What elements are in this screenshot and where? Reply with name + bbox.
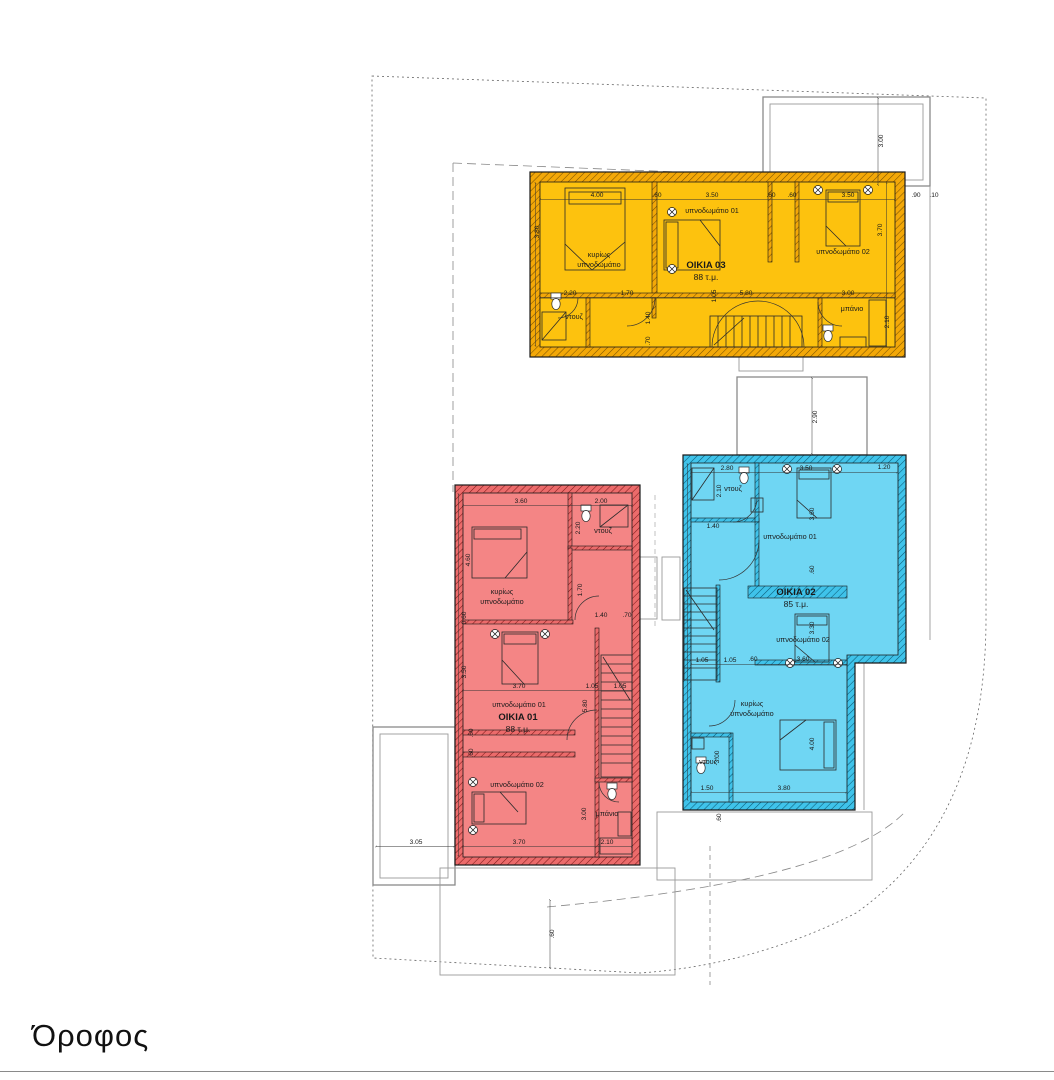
dim-label: 4.00 [591, 192, 604, 199]
deck-below-red [440, 868, 675, 975]
dim-label: 5.80 [740, 290, 753, 297]
dim-label: 3.00 [878, 134, 885, 147]
dim-label: 4.00 [809, 737, 816, 750]
room-label-shower: ντουζ [724, 484, 742, 493]
dim-label: 3.30 [809, 621, 816, 634]
room-label-bed2: υπνοδωμάτιο 02 [776, 635, 830, 644]
room-label-bed1: υπνοδωμάτιο 01 [763, 532, 817, 541]
room-label-master: υπνοδωμάτιο [577, 260, 620, 269]
dim-label: 3.80 [534, 225, 541, 238]
floor-plan-sheet: 4.00 .60 3.50 .60 .60 3.50 .90 .10 3.80 … [0, 0, 1054, 1080]
dim-label: 2.10 [884, 315, 891, 328]
dim-label: 3.50 [800, 465, 813, 472]
dim-label: 2.20 [575, 521, 582, 534]
dim-label: 3.05 [410, 839, 423, 846]
room-label-shower2: ντουζ [699, 757, 717, 766]
terrace-left-inner [380, 734, 448, 878]
dim-label: 3.00 [581, 807, 588, 820]
floor-plan-drawing: 4.00 .60 3.50 .60 .60 3.50 .90 .10 3.80 … [0, 0, 1054, 1080]
planter-1 [638, 557, 657, 619]
room-label-bed1: υπνοδωμάτιο 01 [492, 700, 546, 709]
room-label-bed1: υπνοδωμάτιο 01 [685, 206, 739, 215]
dim-label: 1.50 [701, 785, 714, 792]
dim-label: 2.00 [595, 498, 608, 505]
toilet-icon [581, 505, 591, 522]
dim-label: 3.70 [877, 223, 884, 236]
dim-label: .60 [652, 192, 661, 199]
dim-label: 1.70 [621, 290, 634, 297]
room-label-master: υπνοδωμάτιο [480, 597, 523, 606]
oikia02-interior [691, 463, 898, 802]
dim-label: 3.80 [778, 785, 791, 792]
house-oikia-01 [455, 485, 640, 865]
dim-label: 1.20 [878, 464, 891, 471]
room-label-shower: ντουζ [565, 312, 583, 321]
room-label-bed2: υπνοδωμάτιο 02 [490, 780, 544, 789]
dim-label: 3.00 [842, 290, 855, 297]
planter-2 [662, 557, 680, 620]
toilet-icon [607, 783, 617, 800]
room-label-bath: μπάνιο [596, 809, 619, 818]
room-label-master: κυρίως [741, 699, 764, 708]
dim-label: 1.40 [645, 311, 652, 324]
room-label-master: υπνοδωμάτιο [730, 709, 773, 718]
dim-label: .60 [748, 656, 757, 663]
dim-label: 1.05 [614, 683, 627, 690]
deck-below-blue [657, 812, 872, 880]
balcony-top-right-inner [770, 104, 923, 180]
room-label-bath: μπάνιο [841, 304, 864, 313]
dim-label: .70 [645, 336, 652, 345]
dim-label: 2.90 [812, 410, 819, 423]
dim-label: .10 [929, 192, 938, 199]
dim-label: .60 [468, 728, 475, 737]
dim-label: 2.10 [716, 484, 723, 497]
dim-label: 4.60 [465, 553, 472, 566]
toilet-icon [551, 293, 561, 310]
dim-label: 1.40 [595, 612, 608, 619]
dim-label: 1.70 [577, 583, 584, 596]
dim-label: 1.05 [586, 683, 599, 690]
dim-label: 3.70 [513, 839, 526, 846]
dim-label: .60 [809, 565, 816, 574]
room-label-master: κυρίως [491, 587, 514, 596]
dim-label: 3.50 [706, 192, 719, 199]
sheet-divider [0, 1071, 1054, 1072]
dim-label: 1.05 [711, 289, 718, 302]
room-label-bed2: υπνοδωμάτιο 02 [816, 247, 870, 256]
dim-label: 2.10 [601, 839, 614, 846]
dim-label: 1.05 [724, 657, 737, 664]
toilet-icon [823, 325, 833, 342]
dim-label: .60 [468, 748, 475, 757]
unit-title: OIKIA 01 [498, 712, 538, 723]
dim-label: 3.60 [809, 507, 816, 520]
balcony-mid [737, 377, 867, 455]
toilet-icon [739, 467, 749, 484]
dim-label: .60 [766, 192, 775, 199]
dim-label: 3.50 [461, 665, 468, 678]
dim-label: 3.70 [513, 683, 526, 690]
drawing-title: Όροφος [32, 1018, 149, 1054]
unit-area: 88 τ.μ. [506, 724, 531, 734]
dim-label: 3.60 [797, 656, 810, 663]
unit-area: 88 τ.μ. [694, 272, 719, 282]
dim-label: 3.50 [842, 192, 855, 199]
dim-label: 2.20 [564, 290, 577, 297]
dim-label: .60 [549, 929, 556, 938]
dim-label: .70 [622, 612, 631, 619]
dim-label: 1.40 [707, 523, 720, 530]
dim-label: 1.05 [696, 657, 709, 664]
unit-title: OIKIA 02 [776, 587, 815, 598]
unit-area: 85 τ.μ. [784, 599, 809, 609]
terrace-left [373, 727, 455, 885]
dim-label: 0.60 [461, 611, 468, 624]
room-label-master: κυρίως [588, 250, 611, 259]
dim-label: .60 [787, 192, 796, 199]
dim-label: 3.60 [515, 498, 528, 505]
dim-label: .60 [716, 813, 723, 822]
dim-label: 2.80 [721, 465, 734, 472]
unit-title: OIKIA 03 [686, 260, 725, 271]
dim-label: .90 [911, 192, 920, 199]
room-label-shower: ντουζ [594, 526, 612, 535]
dim-label: 5.80 [582, 699, 589, 712]
